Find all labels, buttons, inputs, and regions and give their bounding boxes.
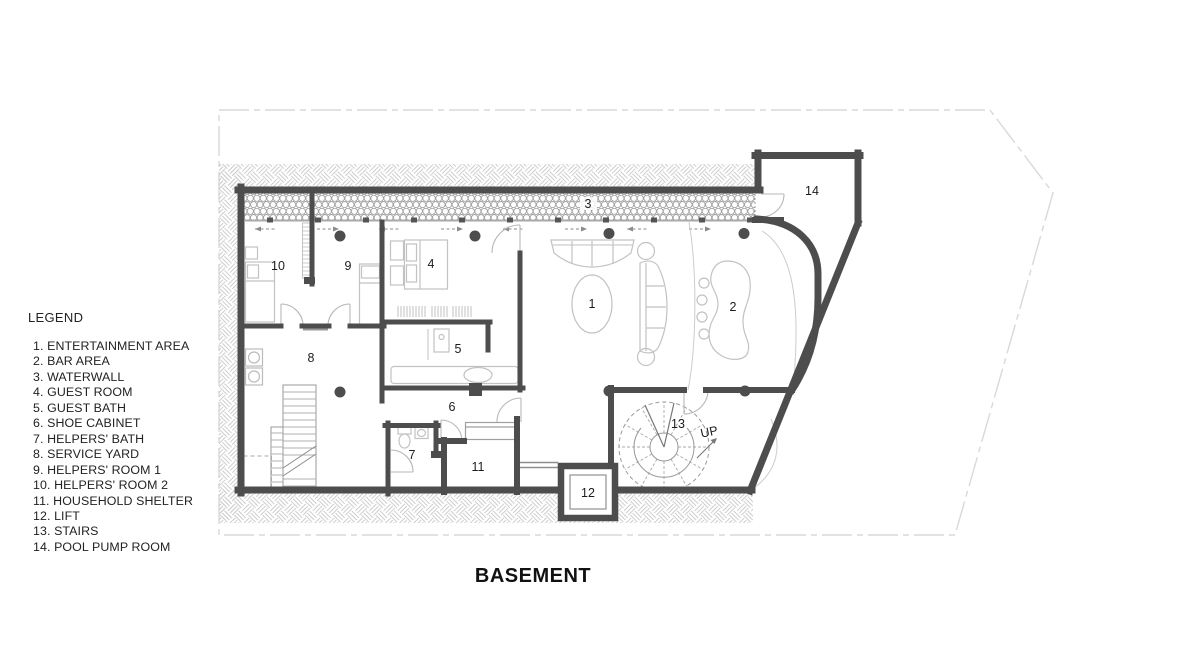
spiral-stair (619, 402, 717, 492)
room-label-stairs: 13 (671, 417, 685, 431)
drain-box (469, 383, 482, 396)
waterwall-strip (245, 194, 756, 232)
hatch-top-band (219, 164, 757, 190)
hatch-bottom-band (219, 490, 753, 523)
room-label-lift: 12 (581, 486, 595, 500)
column (739, 228, 750, 239)
column (740, 386, 751, 397)
room-label-guest-bath: 5 (455, 342, 462, 356)
room-label-household-shelter: 11 (472, 460, 485, 474)
room-label-helpers-bath: 7 (409, 448, 416, 462)
stairs-up-label: UP (699, 423, 719, 440)
room-label-waterwall: 3 (585, 197, 592, 211)
column (470, 231, 481, 242)
room-label-guest-room: 4 (428, 257, 435, 271)
side-table (638, 243, 655, 260)
sofa-curved (551, 240, 634, 267)
sink (415, 428, 428, 439)
sofa-side (640, 261, 667, 353)
wall-curved (757, 219, 818, 390)
straight-stair (244, 385, 317, 493)
up-arrow (697, 438, 717, 458)
toilet (398, 427, 411, 448)
shelter-cabinet (466, 423, 517, 440)
column (604, 386, 615, 397)
bed-room-4 (391, 240, 448, 289)
room-label-bar-area: 2 (730, 300, 737, 314)
room-label-service-yard: 8 (308, 351, 315, 365)
floor-plan-page: LEGEND 1. ENTERTAINMENT AREA 2. BAR AREA… (0, 0, 1200, 664)
vanity (428, 329, 449, 360)
bathtub (391, 367, 518, 384)
wall-diagonal (750, 223, 858, 491)
wall-nib (304, 277, 315, 284)
room-label-pool-pump-room: 14 (805, 184, 819, 198)
sliding-door-arrows (255, 227, 711, 232)
room-label-helpers-room-1: 9 (345, 259, 352, 273)
wardrobe-hangers (398, 306, 471, 317)
column (335, 231, 346, 242)
room-label-shoe-cabinet: 6 (449, 400, 456, 414)
side-table (638, 349, 655, 366)
room-label-helpers-room-2: 10 (271, 259, 285, 273)
low-wall (520, 463, 558, 468)
plan-title: BASEMENT (403, 565, 663, 588)
column (604, 228, 615, 239)
wall-nib (431, 451, 441, 458)
bed-room-9 (360, 264, 382, 325)
room-label-entertainment-area: 1 (589, 297, 596, 311)
column (335, 387, 346, 398)
bar-counter (697, 261, 750, 359)
laundry-machines (246, 349, 263, 385)
